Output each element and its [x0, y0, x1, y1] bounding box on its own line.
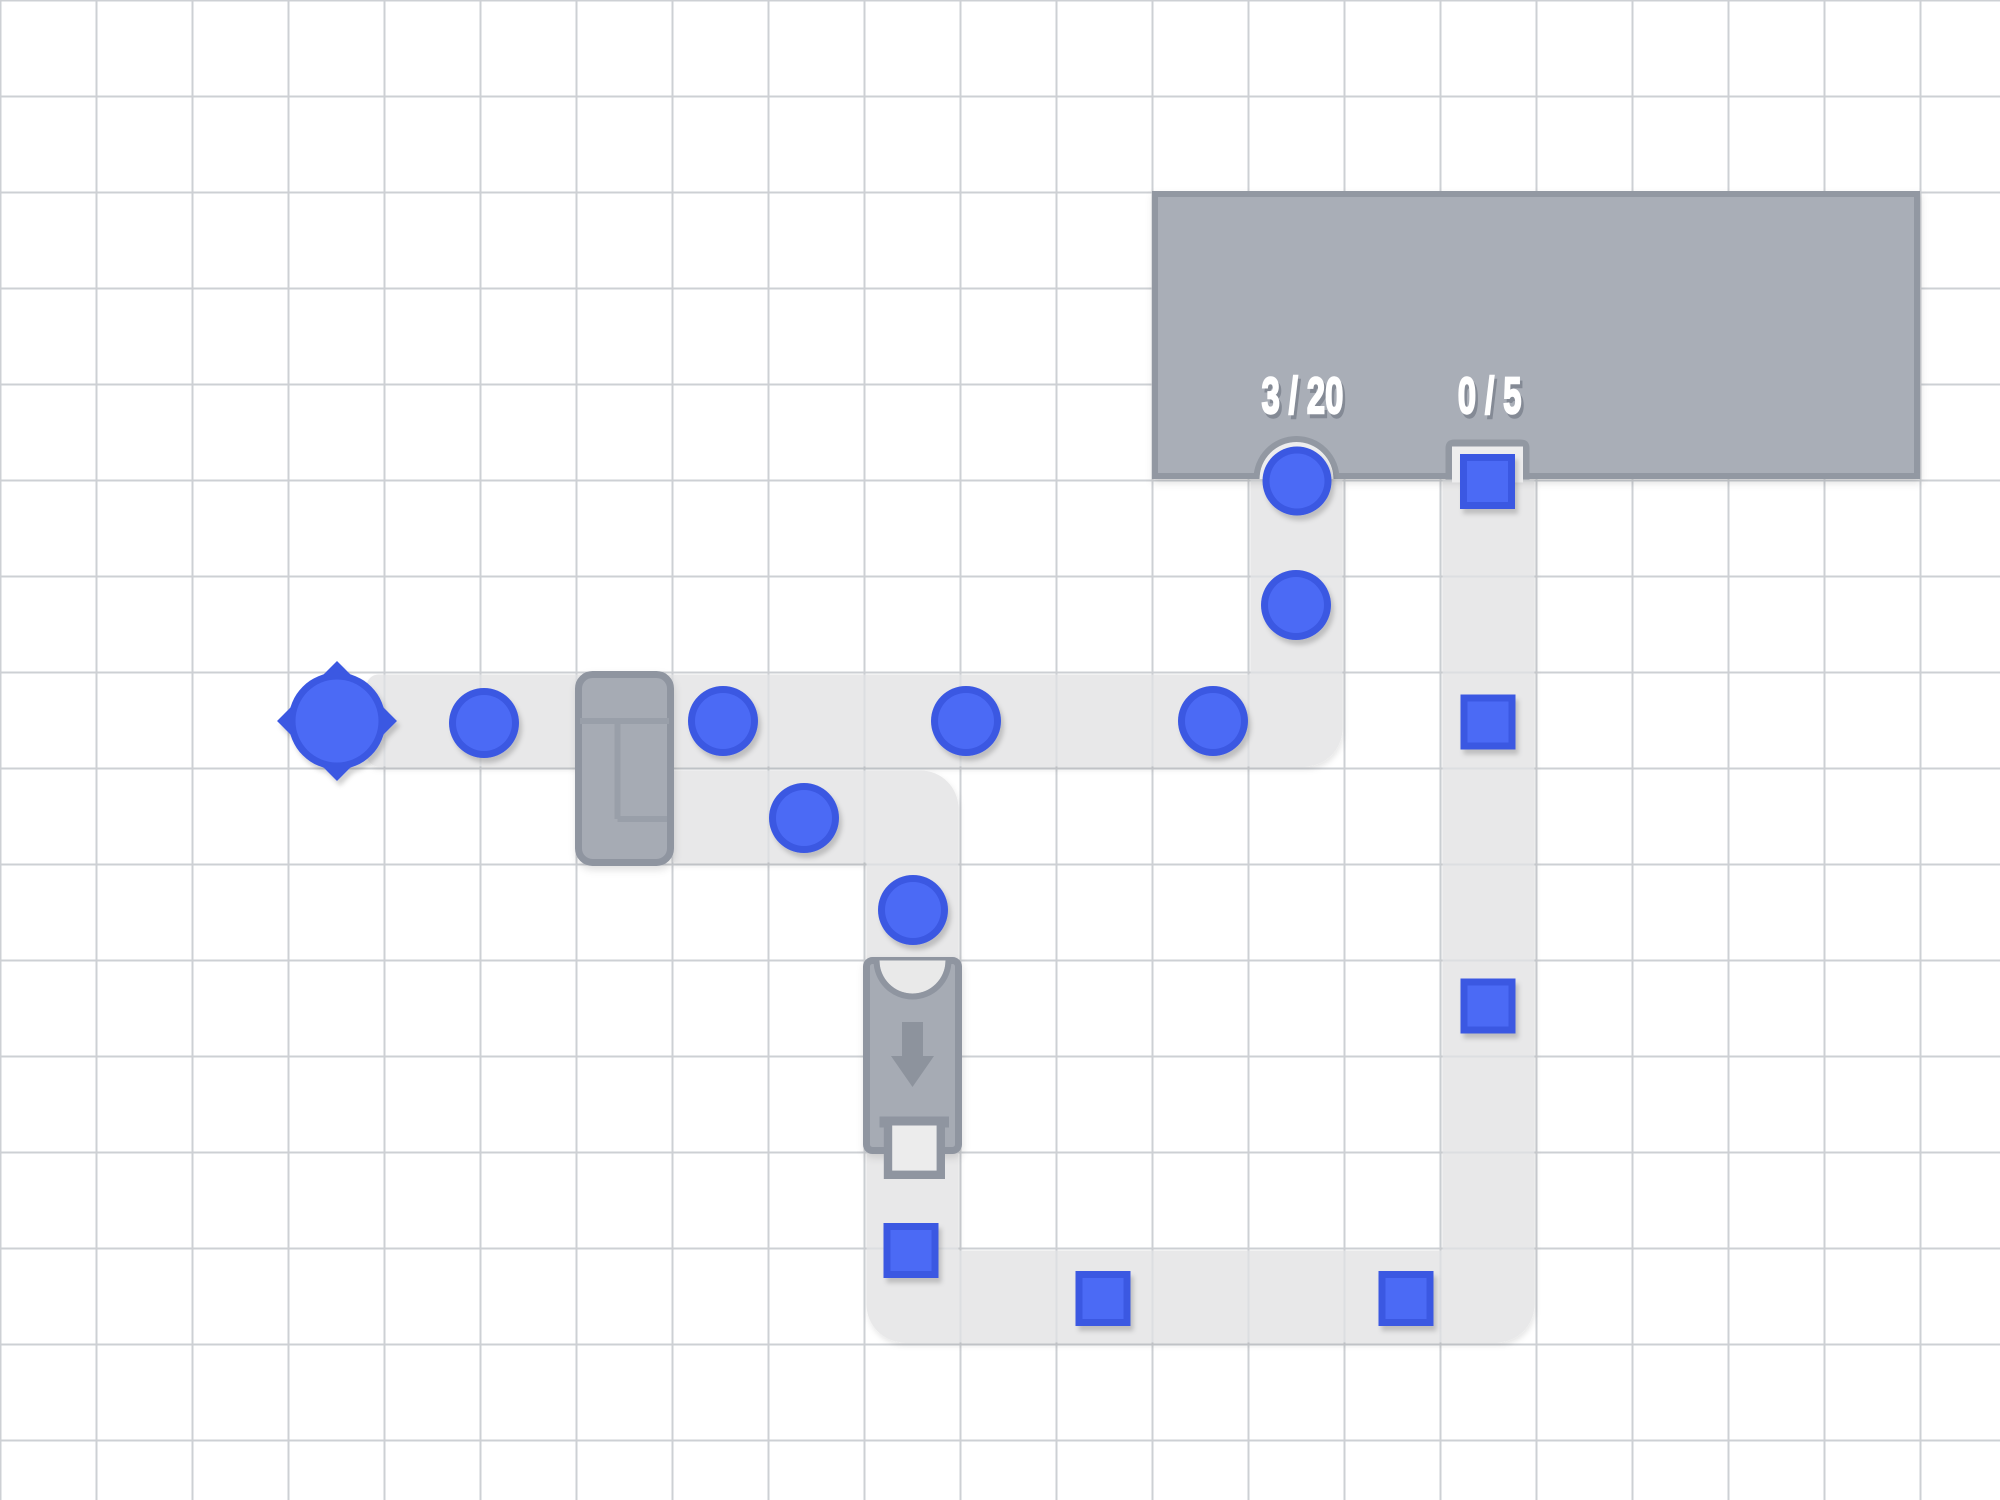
- svg-text:3 / 20: 3 / 20: [1262, 368, 1344, 425]
- svg-text:0 / 5: 0 / 5: [1458, 368, 1521, 425]
